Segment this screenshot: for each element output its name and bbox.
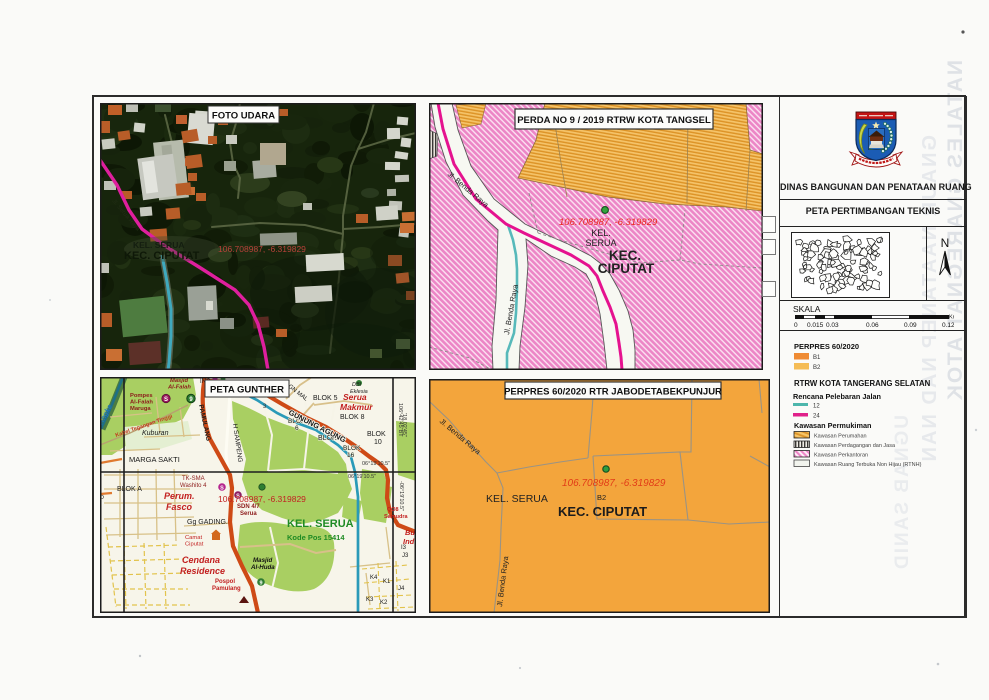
svg-text:Perum.: Perum. xyxy=(164,491,195,501)
svg-text:Kawasan Perkantoran: Kawasan Perkantoran xyxy=(814,453,868,459)
svg-text:0.06: 0.06 xyxy=(866,322,879,329)
svg-text:106.708987, -6.319829: 106.708987, -6.319829 xyxy=(218,244,306,254)
svg-text:Kawasan Ruang Terbuka Non Hija: Kawasan Ruang Terbuka Non Hijau (RTNH) xyxy=(814,462,922,468)
svg-text:Al-Falah: Al-Falah xyxy=(167,385,191,391)
svg-text:106.708987, -6.319829: 106.708987, -6.319829 xyxy=(559,217,658,228)
svg-text:Gg GADING.: Gg GADING. xyxy=(187,519,228,526)
svg-text:SERUA: SERUA xyxy=(585,238,616,248)
svg-text:Masjid: Masjid xyxy=(170,378,188,384)
svg-text:KEL.: KEL. xyxy=(591,228,611,238)
svg-text:N: N xyxy=(941,236,950,250)
svg-text:RTRW KOTA TANGERANG SELATAN: RTRW KOTA TANGERANG SELATAN xyxy=(794,379,931,388)
svg-text:PERPRES 60/2020: PERPRES 60/2020 xyxy=(794,342,859,351)
svg-text:KEL. SERUA: KEL. SERUA xyxy=(133,240,184,250)
svg-text:S: S xyxy=(164,397,168,403)
svg-text:Pamulang: Pamulang xyxy=(212,586,241,592)
svg-text:06°19'10.5": 06°19'10.5" xyxy=(362,461,390,467)
svg-text:Kawasan Perdagangan dan Jasa: Kawasan Perdagangan dan Jasa xyxy=(814,443,896,449)
svg-text:KEC. CIPUTAT: KEC. CIPUTAT xyxy=(558,504,647,519)
svg-text:KEC. CIPUTAT: KEC. CIPUTAT xyxy=(124,250,200,262)
svg-text:0.015: 0.015 xyxy=(807,322,824,329)
svg-text:K2: K2 xyxy=(380,600,388,606)
svg-text:06°19'10.5": 06°19'10.5" xyxy=(348,474,376,480)
svg-text:BLOK A: BLOK A xyxy=(117,486,142,493)
svg-text:0.12: 0.12 xyxy=(942,322,954,329)
svg-text:BLOK 5: BLOK 5 xyxy=(313,395,338,402)
svg-text:Fasco: Fasco xyxy=(166,502,193,512)
svg-text:Residence: Residence xyxy=(180,566,225,576)
svg-text:PERDA NO 9 / 2019 RTRW KOTA TA: PERDA NO 9 / 2019 RTRW KOTA TANGSEL xyxy=(517,115,711,126)
svg-text:Al-Huda: Al-Huda xyxy=(250,564,275,571)
svg-text:Masjid: Masjid xyxy=(253,557,272,564)
svg-text:BLOK: BLOK xyxy=(367,431,386,438)
svg-text:Cendana: Cendana xyxy=(182,555,220,565)
svg-text:B1: B1 xyxy=(813,355,821,361)
svg-text:B2: B2 xyxy=(813,365,821,371)
svg-text:Bu: Bu xyxy=(405,528,415,537)
svg-text:Al-Falah: Al-Falah xyxy=(130,400,153,406)
svg-text:Kode Pos 15414: Kode Pos 15414 xyxy=(287,533,345,542)
svg-text:K1: K1 xyxy=(383,579,391,585)
svg-text:FOTO UDARA: FOTO UDARA xyxy=(212,111,275,122)
svg-text:SDN 4/7: SDN 4/7 xyxy=(237,504,260,510)
svg-text:Kawasan Perumahan: Kawasan Perumahan xyxy=(814,434,867,440)
svg-text:106.708987, -6.319829: 106.708987, -6.319829 xyxy=(218,494,306,504)
svg-text:KEL. SERUA: KEL. SERUA xyxy=(486,493,548,505)
svg-text:24: 24 xyxy=(813,414,820,420)
svg-text:S: S xyxy=(220,486,224,492)
svg-text:12: 12 xyxy=(813,404,820,410)
svg-text:Serua: Serua xyxy=(343,392,367,402)
svg-text:QO8: QO8 xyxy=(387,507,399,513)
svg-text:Serua: Serua xyxy=(240,511,257,517)
svg-text:J4: J4 xyxy=(398,586,405,592)
svg-text:I3: I3 xyxy=(401,545,407,551)
svg-text:B2: B2 xyxy=(597,493,606,502)
svg-text:Ciputat: Ciputat xyxy=(185,542,204,548)
svg-text:DBI: DBI xyxy=(352,382,362,388)
svg-text:KEL. SERUA: KEL. SERUA xyxy=(287,518,354,530)
svg-text:Kawasan Permukiman: Kawasan Permukiman xyxy=(794,421,871,430)
svg-text:Rencana Pelebaran Jalan: Rencana Pelebaran Jalan xyxy=(793,392,881,401)
svg-text:BLOK 8: BLOK 8 xyxy=(340,414,365,421)
svg-text:Washito 4: Washito 4 xyxy=(180,483,207,489)
svg-text:MARGA SAKTI: MARGA SAKTI xyxy=(129,455,180,464)
svg-text:0.09: 0.09 xyxy=(904,322,917,329)
svg-text:0.03: 0.03 xyxy=(826,322,839,329)
svg-text:Maruga: Maruga xyxy=(130,406,151,412)
svg-text:6: 6 xyxy=(295,425,299,432)
svg-text:-06°19'10.5": -06°19'10.5" xyxy=(398,481,404,511)
svg-text:Pospol: Pospol xyxy=(215,579,235,585)
svg-text:BLOK: BLOK xyxy=(343,445,361,452)
svg-text:0: 0 xyxy=(794,322,798,329)
svg-text:Samudra: Samudra xyxy=(384,514,408,520)
svg-text:Pompes: Pompes xyxy=(130,393,153,399)
svg-text:PETA GUNTHER: PETA GUNTHER xyxy=(210,385,284,396)
svg-text:PERPRES 60/2020 RTR JABODETABE: PERPRES 60/2020 RTR JABODETABEKPUNJUR xyxy=(504,387,722,398)
svg-text:'18.02'45": '18.02'45" xyxy=(401,413,407,437)
svg-text:J3: J3 xyxy=(402,553,409,559)
svg-text:K4: K4 xyxy=(370,575,378,581)
svg-text:9: 9 xyxy=(259,581,262,587)
svg-text:16: 16 xyxy=(347,452,355,459)
svg-text:K3: K3 xyxy=(366,597,374,603)
svg-text:106.708987, -6.319829: 106.708987, -6.319829 xyxy=(562,478,666,489)
svg-text:TK-SMA: TK-SMA xyxy=(182,476,205,482)
svg-text:Km: Km xyxy=(949,315,954,321)
svg-text:10: 10 xyxy=(374,439,382,446)
svg-text:Makmur: Makmur xyxy=(340,402,373,412)
svg-text:CIPUTAT: CIPUTAT xyxy=(598,261,655,276)
svg-text:Camat: Camat xyxy=(185,535,202,541)
svg-text:Kuburan: Kuburan xyxy=(142,430,169,437)
